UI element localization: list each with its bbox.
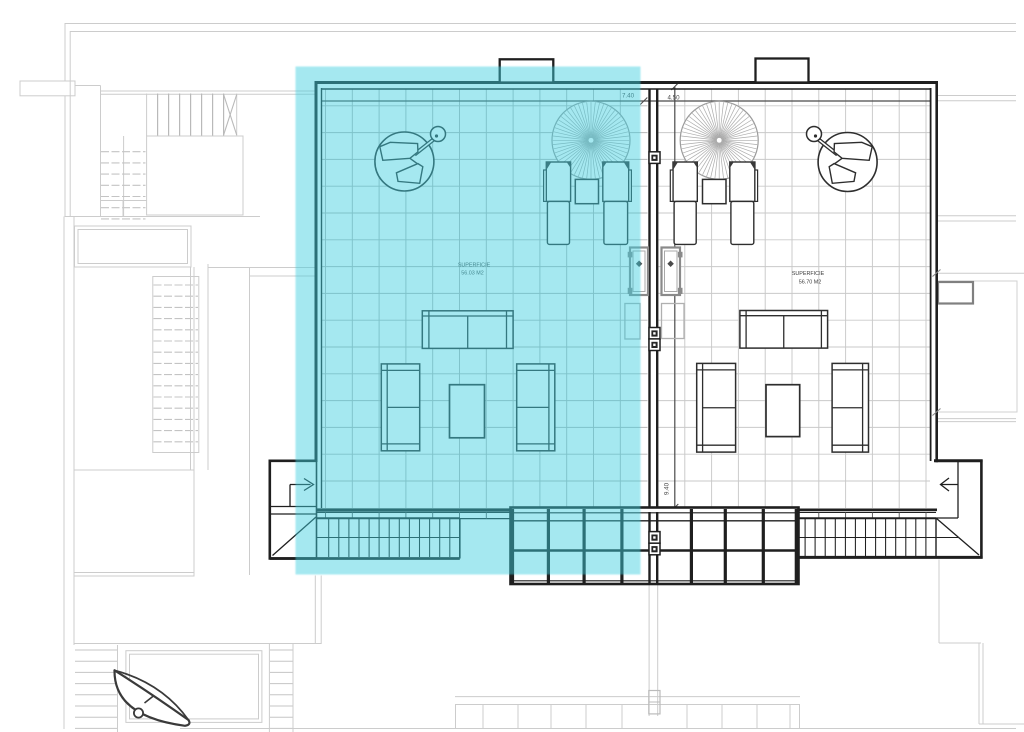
svg-text:9.40: 9.40 [664, 482, 671, 495]
svg-text:56.70 M2: 56.70 M2 [799, 280, 821, 286]
svg-text:SUPERFICIE: SUPERFICIE [792, 271, 825, 277]
svg-text:4.50: 4.50 [667, 95, 680, 102]
